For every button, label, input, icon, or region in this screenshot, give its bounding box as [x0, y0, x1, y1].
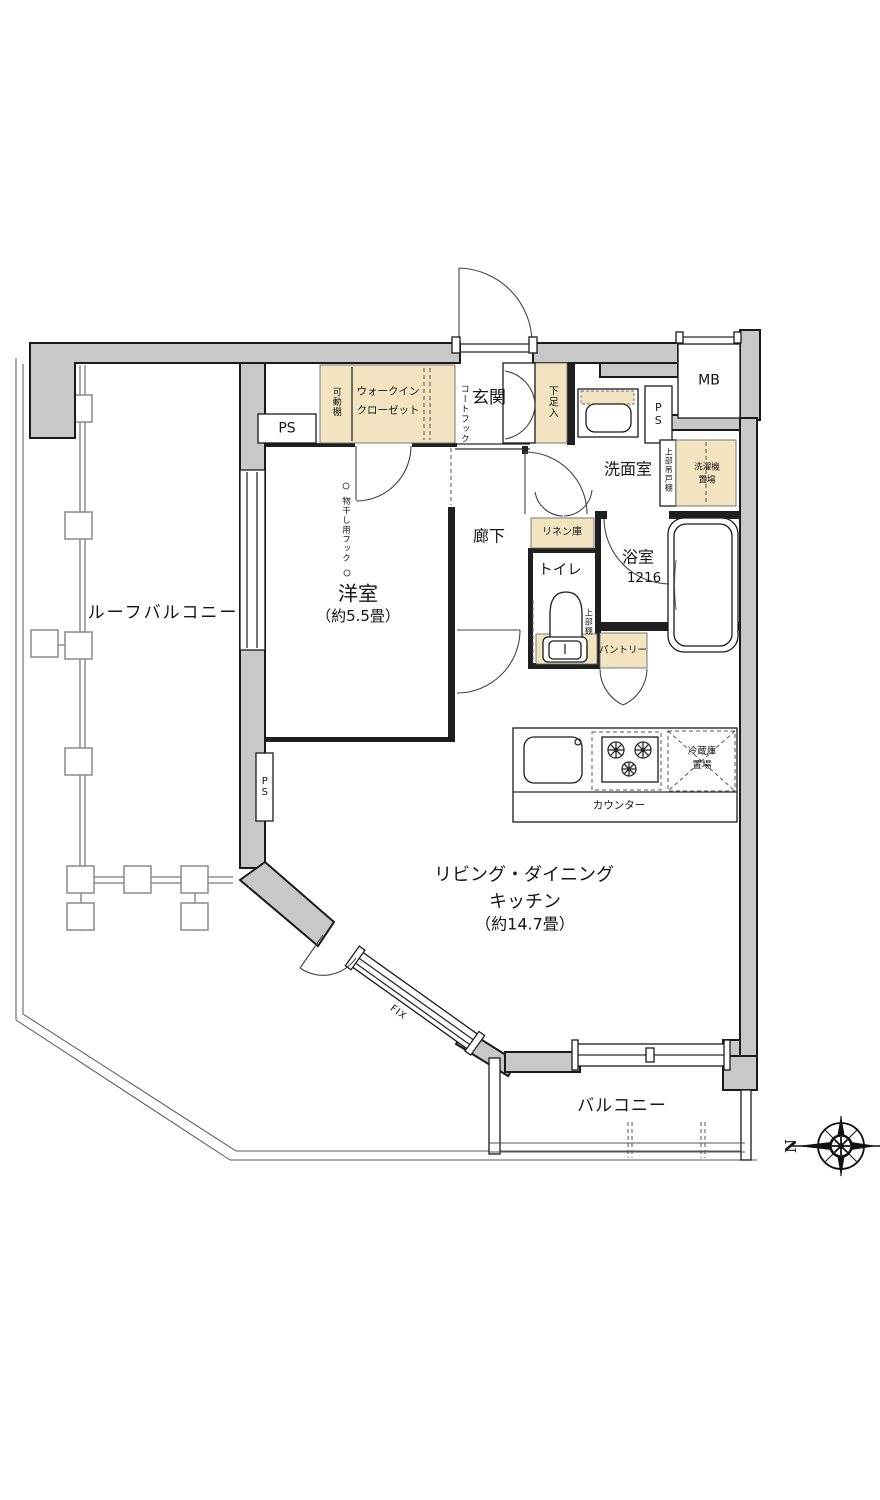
roof-balcony-fence: [31, 365, 233, 931]
compass-icon: [791, 1115, 880, 1177]
toilet-icon: [543, 592, 587, 662]
linen-doors-icon: [535, 492, 563, 516]
coat-hook-label: コートフック: [458, 384, 467, 444]
pantry-doors-icon: [600, 669, 623, 705]
wic-label-line2: クローゼット: [357, 405, 420, 416]
movable-shelf-label: 可動棚: [330, 387, 339, 417]
bathtub-icon: [668, 518, 738, 652]
ldk-size-label: （約14.7畳）: [475, 917, 575, 934]
ps-label-lower: PS: [259, 776, 270, 798]
upper-hanging-cabinet-label: 上部吊戸棚: [664, 448, 672, 493]
washroom-label: 洗面室: [604, 462, 652, 479]
floorplan-page: ルーフバルコニー 洋室 （約5.5畳） リビング・ダイニング キッチン （約14…: [0, 0, 880, 1500]
laundry-hook-label: 物干し用フック: [341, 497, 350, 564]
terrace-door-icon: [300, 958, 356, 975]
laundry-hook-icon: [343, 483, 349, 489]
front-door-icon: [452, 268, 537, 353]
wic-label-line1: ウォークイン: [357, 386, 420, 397]
toilet-label: トイレ: [538, 563, 582, 578]
washer-space-label-line1: 洗濯機: [694, 464, 720, 473]
roof-balcony-label: ルーフバルコニー: [88, 605, 239, 623]
fridge-space-label-line2: 置場: [692, 761, 711, 771]
western-room-window-icon: [240, 470, 265, 650]
compass-north-label: N: [784, 1139, 800, 1153]
western-room-size-label: （約5.5畳）: [316, 609, 400, 625]
kitchen-sink-icon: [524, 737, 582, 783]
ps-label-top: PS: [278, 422, 295, 437]
linen-cabinet-label: リネン庫: [542, 528, 582, 539]
entrance-closet: [503, 363, 535, 443]
floorplan-drawing: [0, 0, 880, 1500]
fix-window-icon: [345, 946, 484, 1055]
bathroom-label: 浴室: [622, 550, 654, 567]
ldk-label-line2: キッチン: [489, 894, 561, 913]
ps-label-right: PS: [652, 401, 664, 427]
ldk-label-line1: リビング・ダイニング: [434, 867, 614, 886]
washroom-door-icon: [525, 452, 587, 514]
balcony-sliding-window-icon: [572, 1040, 730, 1070]
ldk-door-icon: [457, 630, 520, 693]
entrance-label: 玄関: [472, 390, 506, 408]
counter-label: カウンター: [593, 800, 646, 811]
western-room-label: 洋室: [338, 584, 378, 605]
upper-shelf-label: 上部棚: [584, 609, 592, 636]
bathroom-size-label: 1216: [627, 571, 661, 585]
pantry-label: パントリー: [599, 646, 647, 656]
wic-door-icon: [356, 446, 411, 501]
shoe-cabinet-label: 下足入: [546, 386, 557, 419]
fridge-space-label-line1: 冷蔵庫: [688, 747, 717, 757]
washer-space-label-line2: 置場: [698, 477, 715, 486]
hallway-label: 廊下: [473, 529, 505, 546]
stove-icon: [602, 737, 658, 782]
balcony-label: バルコニー: [577, 1098, 667, 1116]
vanity-sink-icon: [578, 389, 638, 437]
mb-label: MB: [698, 374, 720, 389]
